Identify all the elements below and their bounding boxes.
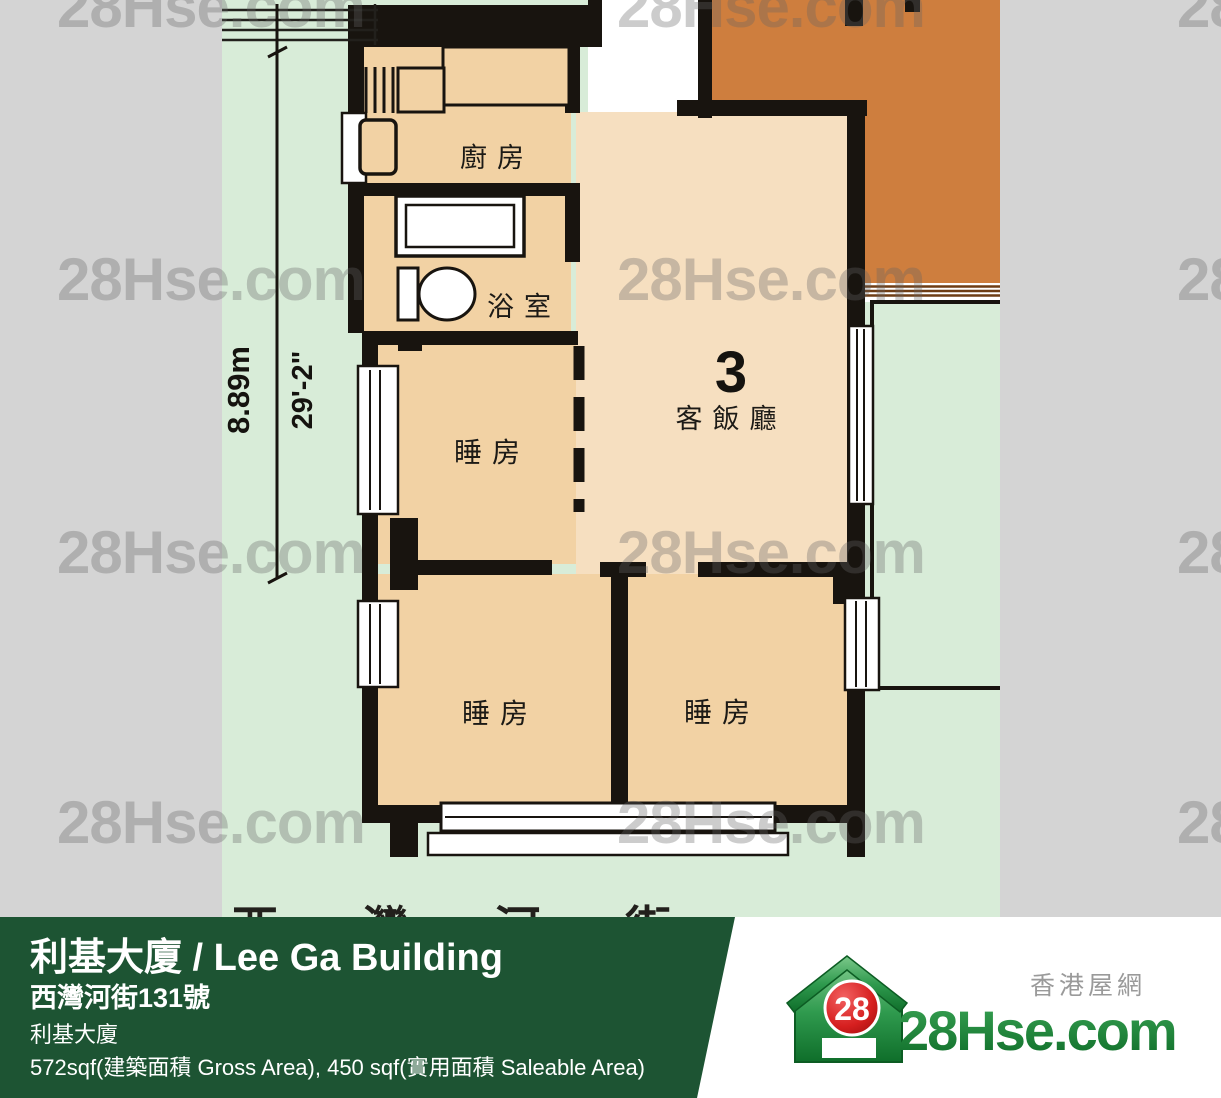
room-label-living: 客飯廳 bbox=[676, 404, 787, 434]
unit-number-label: 3 bbox=[715, 340, 747, 405]
lightwell-frame bbox=[872, 302, 1004, 688]
building-area: 572sqf(建築面積 Gross Area), 450 sqf(實用面積 Sa… bbox=[30, 1050, 645, 1082]
badge-28-icon: 28 bbox=[825, 981, 879, 1035]
badge-28-text: 28 bbox=[834, 991, 870, 1027]
room-label-bedroom2: 睡房 bbox=[462, 698, 538, 730]
building-title: 利基大廈 / Lee Ga Building bbox=[30, 926, 503, 981]
floorplan-image: 8.89m 29'-2" 廚房 浴室 睡房 睡房 睡房 客飯廳 3 西灣河街 2… bbox=[0, 0, 1221, 1098]
bedroom3-fill bbox=[620, 574, 853, 810]
room-label-kitchen: 廚房 bbox=[460, 143, 534, 173]
toilet-tank-icon bbox=[398, 268, 418, 320]
info-banner: 利基大廈 / Lee Ga Building 西灣河街131號 利基大廈 572… bbox=[0, 917, 1221, 1098]
bedroom2-fill bbox=[370, 574, 620, 810]
dimension-imperial-label: 29'-2" bbox=[287, 351, 319, 430]
kitchen-counter bbox=[443, 47, 569, 105]
site-logo: 28 28Hse.com 香港屋網 bbox=[755, 942, 1195, 1082]
brand-text: 28Hse.com bbox=[898, 999, 1176, 1062]
room-label-bathroom: 浴室 bbox=[487, 292, 561, 322]
sink-icon bbox=[360, 120, 396, 174]
kitchen-counter-2 bbox=[398, 68, 444, 112]
toilet-icon bbox=[419, 268, 475, 320]
room-label-bedroom1: 睡房 bbox=[454, 437, 530, 469]
dimension-line bbox=[268, 4, 287, 583]
tagline-text: 香港屋網 bbox=[1030, 972, 1146, 1000]
building-name: 利基大廈 bbox=[30, 1017, 118, 1049]
building-address: 西灣河街131號 bbox=[30, 976, 210, 1015]
dimension-metric-label: 8.89m bbox=[221, 346, 256, 434]
room-label-bedroom3: 睡房 bbox=[684, 697, 760, 729]
left-margin bbox=[0, 0, 222, 917]
right-margin bbox=[1000, 0, 1221, 917]
